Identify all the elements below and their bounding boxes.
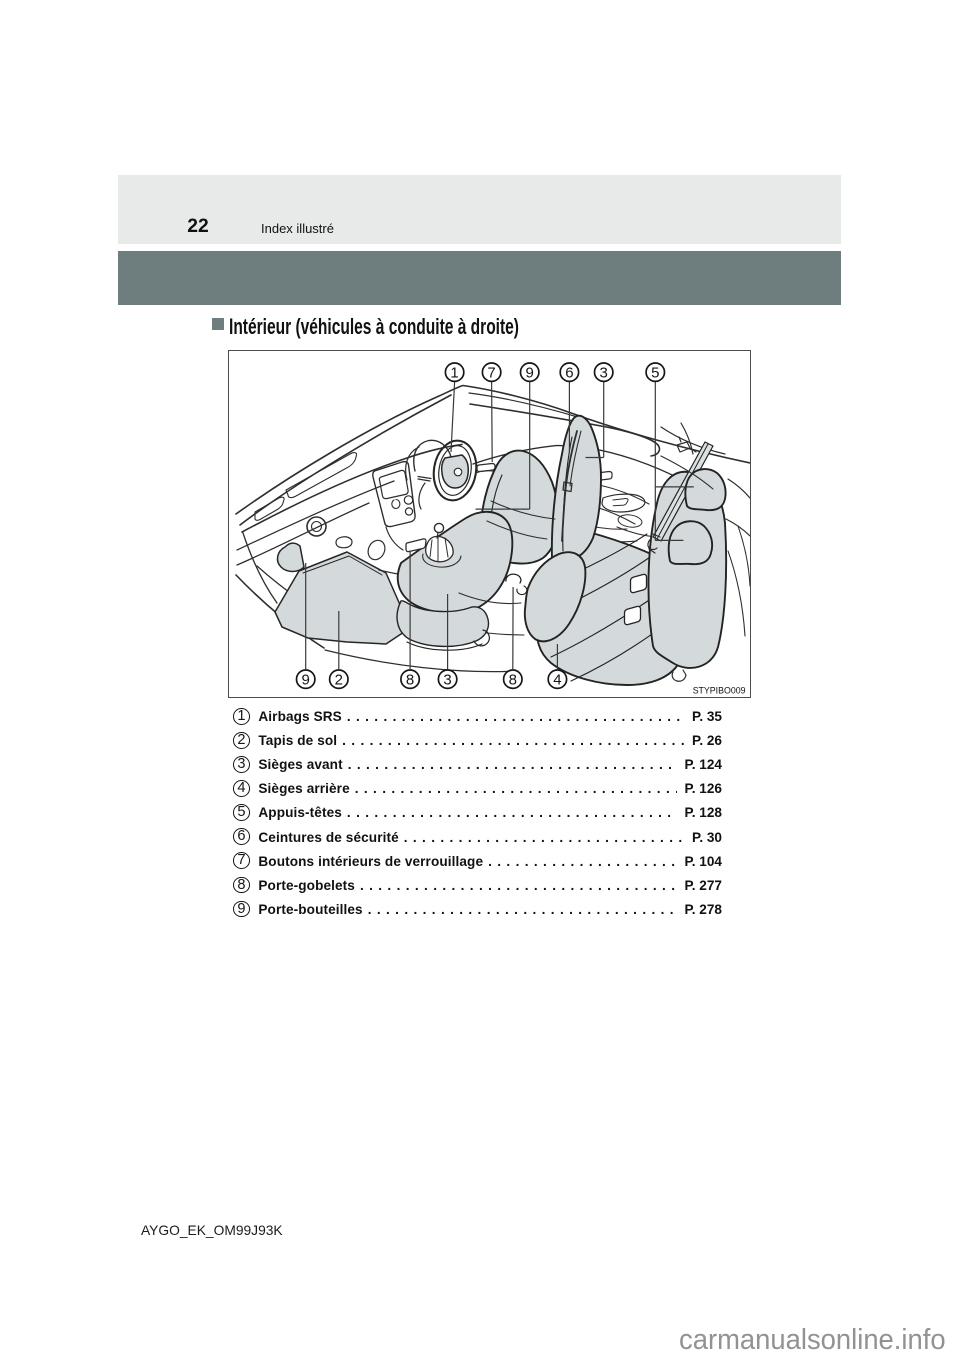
svg-text:3: 3 — [443, 671, 451, 688]
svg-text:1: 1 — [450, 364, 458, 381]
svg-text:3: 3 — [599, 364, 607, 381]
svg-text:6: 6 — [565, 364, 573, 381]
svg-text:5: 5 — [651, 364, 659, 381]
svg-text:8: 8 — [508, 671, 516, 688]
svg-text:2: 2 — [334, 671, 342, 688]
svg-text:8: 8 — [405, 671, 413, 688]
svg-text:4: 4 — [553, 671, 561, 688]
svg-text:9: 9 — [525, 364, 533, 381]
svg-text:7: 7 — [487, 364, 495, 381]
svg-text:STYPIBO009: STYPIBO009 — [692, 685, 745, 695]
svg-text:9: 9 — [301, 671, 309, 688]
